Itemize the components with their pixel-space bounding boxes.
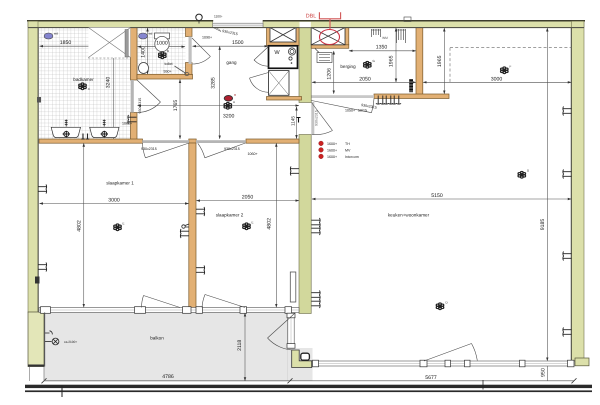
svg-text:1600+: 1600+ [327, 155, 337, 159]
svg-text:1000: 1000 [156, 41, 168, 47]
svg-text:wd: wd [149, 32, 153, 36]
svg-text:B: B [167, 49, 169, 53]
svg-text:4802: 4802 [267, 218, 273, 230]
svg-text:1600+: 1600+ [327, 142, 337, 146]
svg-text:1850: 1850 [60, 40, 72, 46]
svg-text:1050+: 1050+ [345, 109, 355, 113]
svg-text:slaapkamer 1: slaapkamer 1 [106, 180, 134, 185]
svg-text:1765: 1765 [173, 100, 179, 112]
svg-text:930x2315: 930x2315 [138, 98, 142, 114]
svg-text:keuken+woonkamer: keuken+woonkamer [388, 212, 430, 217]
svg-text:2050: 2050 [242, 195, 254, 201]
svg-text:1965: 1965 [389, 55, 395, 67]
svg-text:9185: 9185 [540, 219, 546, 231]
svg-text:A: A [233, 100, 235, 104]
svg-text:1090+: 1090+ [202, 35, 212, 39]
svg-text:550+: 550+ [164, 69, 172, 73]
svg-text:50/15: 50/15 [358, 109, 367, 113]
svg-text:4786: 4786 [162, 374, 174, 380]
svg-text:3240: 3240 [106, 77, 112, 89]
svg-text:wd: wd [54, 32, 58, 36]
svg-text:WM: WM [382, 36, 388, 40]
svg-text:MV: MV [345, 149, 351, 153]
svg-text:slaapkamer 2: slaapkamer 2 [216, 212, 244, 217]
svg-text:930x2315: 930x2315 [224, 147, 240, 151]
svg-text:TH: TH [345, 142, 350, 146]
svg-text:DBL: DBL [306, 13, 317, 19]
svg-text:5150: 5150 [431, 193, 443, 199]
svg-text:2050: 2050 [359, 76, 371, 82]
svg-text:Intercom: Intercom [345, 155, 359, 159]
svg-text:toilet: toilet [164, 62, 173, 66]
svg-text:1060+: 1060+ [122, 121, 132, 125]
svg-text:1145: 1145 [291, 116, 296, 126]
svg-text:E: E [123, 222, 125, 226]
svg-text:930x2315: 930x2315 [141, 147, 157, 151]
svg-text:E: E [252, 221, 254, 225]
svg-text:badkamer: badkamer [73, 77, 94, 82]
svg-text:gang: gang [226, 60, 237, 65]
svg-text:4802: 4802 [77, 220, 83, 232]
svg-text:3000: 3000 [108, 198, 120, 204]
svg-text:1206: 1206 [327, 68, 333, 80]
svg-text:balkon: balkon [150, 335, 164, 340]
svg-text:berging: berging [340, 64, 356, 69]
svg-text:1100+: 1100+ [214, 15, 223, 19]
svg-text:930x2315: 930x2315 [315, 110, 319, 126]
svg-text:1060+: 1060+ [248, 152, 258, 156]
svg-text:1400: 1400 [140, 46, 146, 58]
svg-text:2118: 2118 [237, 340, 243, 351]
svg-text:1350: 1350 [376, 45, 388, 51]
svg-text:3000: 3000 [491, 76, 503, 82]
svg-text:5677: 5677 [425, 375, 437, 381]
svg-text:1600+: 1600+ [327, 149, 337, 153]
svg-text:1965: 1965 [437, 55, 443, 67]
svg-text:3200: 3200 [223, 114, 235, 120]
svg-text:1500: 1500 [232, 40, 244, 46]
svg-text:950: 950 [541, 368, 547, 377]
svg-text:3285: 3285 [211, 77, 217, 89]
svg-text:W: W [274, 50, 280, 56]
svg-text:ca.2100+: ca.2100+ [64, 340, 77, 344]
svg-text:F: F [510, 65, 512, 69]
